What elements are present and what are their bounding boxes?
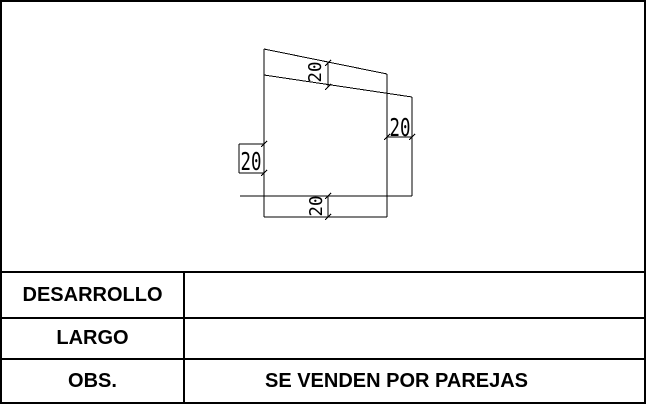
desarrollo-value [185, 273, 644, 317]
dimension-label-right: 20 [390, 113, 411, 142]
obs-value: SE VENDEN POR PAREJAS [185, 360, 608, 402]
fold-slant-line [264, 75, 412, 97]
dimension-label-left: 20 [241, 147, 262, 176]
largo-label: LARGO [2, 319, 183, 358]
largo-value [185, 319, 644, 358]
drawing-sheet: 20 20 20 20 DESARROLLO LARGO OBS. SE VEN… [0, 0, 646, 404]
desarrollo-label: DESARROLLO [2, 273, 183, 317]
obs-label: OBS. [2, 360, 183, 402]
dimension-label-top: 20 [305, 62, 326, 83]
dimension-label-bottom: 20 [306, 196, 327, 217]
development-drawing: 20 20 20 20 [0, 0, 646, 271]
